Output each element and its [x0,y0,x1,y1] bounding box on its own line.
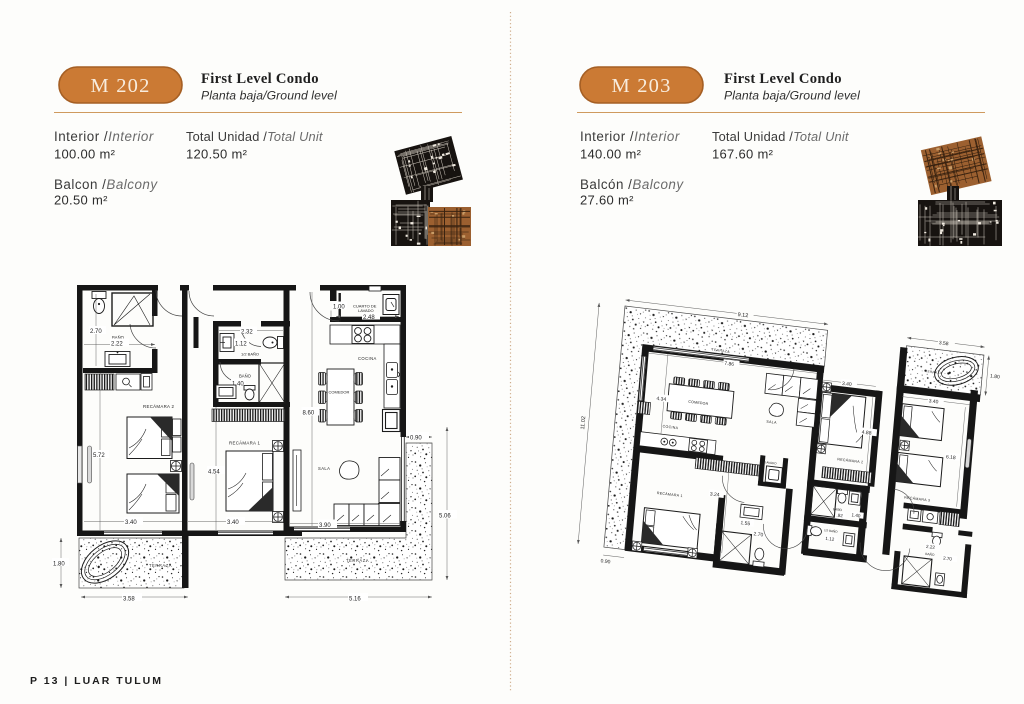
svg-text:First Level Condo: First Level Condo [201,71,319,87]
svg-text:First Level Condo: First Level Condo [724,71,842,87]
svg-text:5.16: 5.16 [349,597,361,603]
svg-text:SALA: SALA [318,466,330,471]
svg-text:100.00 m²: 100.00 m² [54,147,116,162]
svg-text:3.40: 3.40 [227,520,239,526]
svg-text:Total Unidad /Total Unit: Total Unidad /Total Unit [712,129,849,144]
svg-text:20.50 m²: 20.50 m² [54,193,108,208]
svg-text:RECÁMARA 1: RECÁMARA 1 [229,441,261,446]
svg-text:Planta baja/Ground level: Planta baja/Ground level [724,89,860,103]
svg-text:1.00: 1.00 [333,305,345,311]
svg-text:4.34: 4.34 [656,396,666,403]
svg-text:120.50 m²: 120.50 m² [186,147,248,162]
svg-text:3.58: 3.58 [123,597,135,603]
svg-text:5.06: 5.06 [439,514,451,520]
svg-text:RECÁMARA 2: RECÁMARA 2 [143,404,175,409]
svg-text:1/2 BAÑO: 1/2 BAÑO [241,352,259,357]
svg-text:0.90: 0.90 [410,436,422,442]
svg-text:Balcon /Balcony: Balcon /Balcony [54,177,158,192]
svg-text:2.70: 2.70 [90,329,102,335]
svg-text:4.54: 4.54 [208,470,220,476]
svg-text:TERRAZA: TERRAZA [346,558,369,563]
svg-text:140.00 m²: 140.00 m² [580,147,642,162]
svg-text:LAVADO: LAVADO [358,308,374,313]
svg-text:7.86: 7.86 [724,361,734,368]
svg-text:9.12: 9.12 [737,312,748,319]
svg-text:4.88: 4.88 [862,430,872,437]
svg-text:Planta baja/Ground level: Planta baja/Ground level [201,89,337,103]
svg-text:2.70: 2.70 [753,531,763,538]
svg-text:3.58: 3.58 [939,340,949,347]
svg-text:3.40: 3.40 [928,398,938,405]
svg-text:Total Unidad /Total Unit: Total Unidad /Total Unit [186,129,323,144]
svg-text:TERRAZA: TERRAZA [149,563,172,568]
svg-text:Balcón /Balcony: Balcón /Balcony [580,177,684,192]
svg-text:11.02: 11.02 [580,416,587,430]
svg-text:Interior /Interior: Interior /Interior [580,129,680,144]
svg-text:BAÑO: BAÑO [239,374,252,379]
svg-text:M 203: M 203 [611,75,671,97]
svg-text:COCINA: COCINA [358,356,377,361]
svg-text:5.72: 5.72 [93,453,105,459]
svg-text:6.18: 6.18 [946,454,956,461]
svg-text:27.60 m²: 27.60 m² [580,193,634,208]
svg-text:M 202: M 202 [90,75,150,97]
svg-text:1.80: 1.80 [53,562,65,568]
svg-text:3.40: 3.40 [125,520,137,526]
svg-text:.92: .92 [836,513,843,519]
svg-text:COMEDOR: COMEDOR [329,390,350,395]
svg-text:3.24: 3.24 [710,491,720,498]
svg-text:2.32: 2.32 [241,330,253,336]
svg-text:3.40: 3.40 [842,381,852,388]
svg-text:1.80: 1.80 [990,373,1000,380]
svg-text:3.90: 3.90 [319,523,331,529]
svg-text:167.60 m²: 167.60 m² [712,147,774,162]
svg-text:Interior /Interior: Interior /Interior [54,129,154,144]
svg-text:2.48: 2.48 [363,315,375,321]
svg-text:8.60: 8.60 [303,411,315,417]
svg-text:2.22: 2.22 [111,342,123,348]
svg-text:P 13 | LUAR TULUM: P 13 | LUAR TULUM [30,675,163,687]
svg-text:1.12: 1.12 [235,342,247,348]
svg-text:1.55: 1.55 [740,520,750,527]
svg-text:0.90: 0.90 [600,558,610,565]
